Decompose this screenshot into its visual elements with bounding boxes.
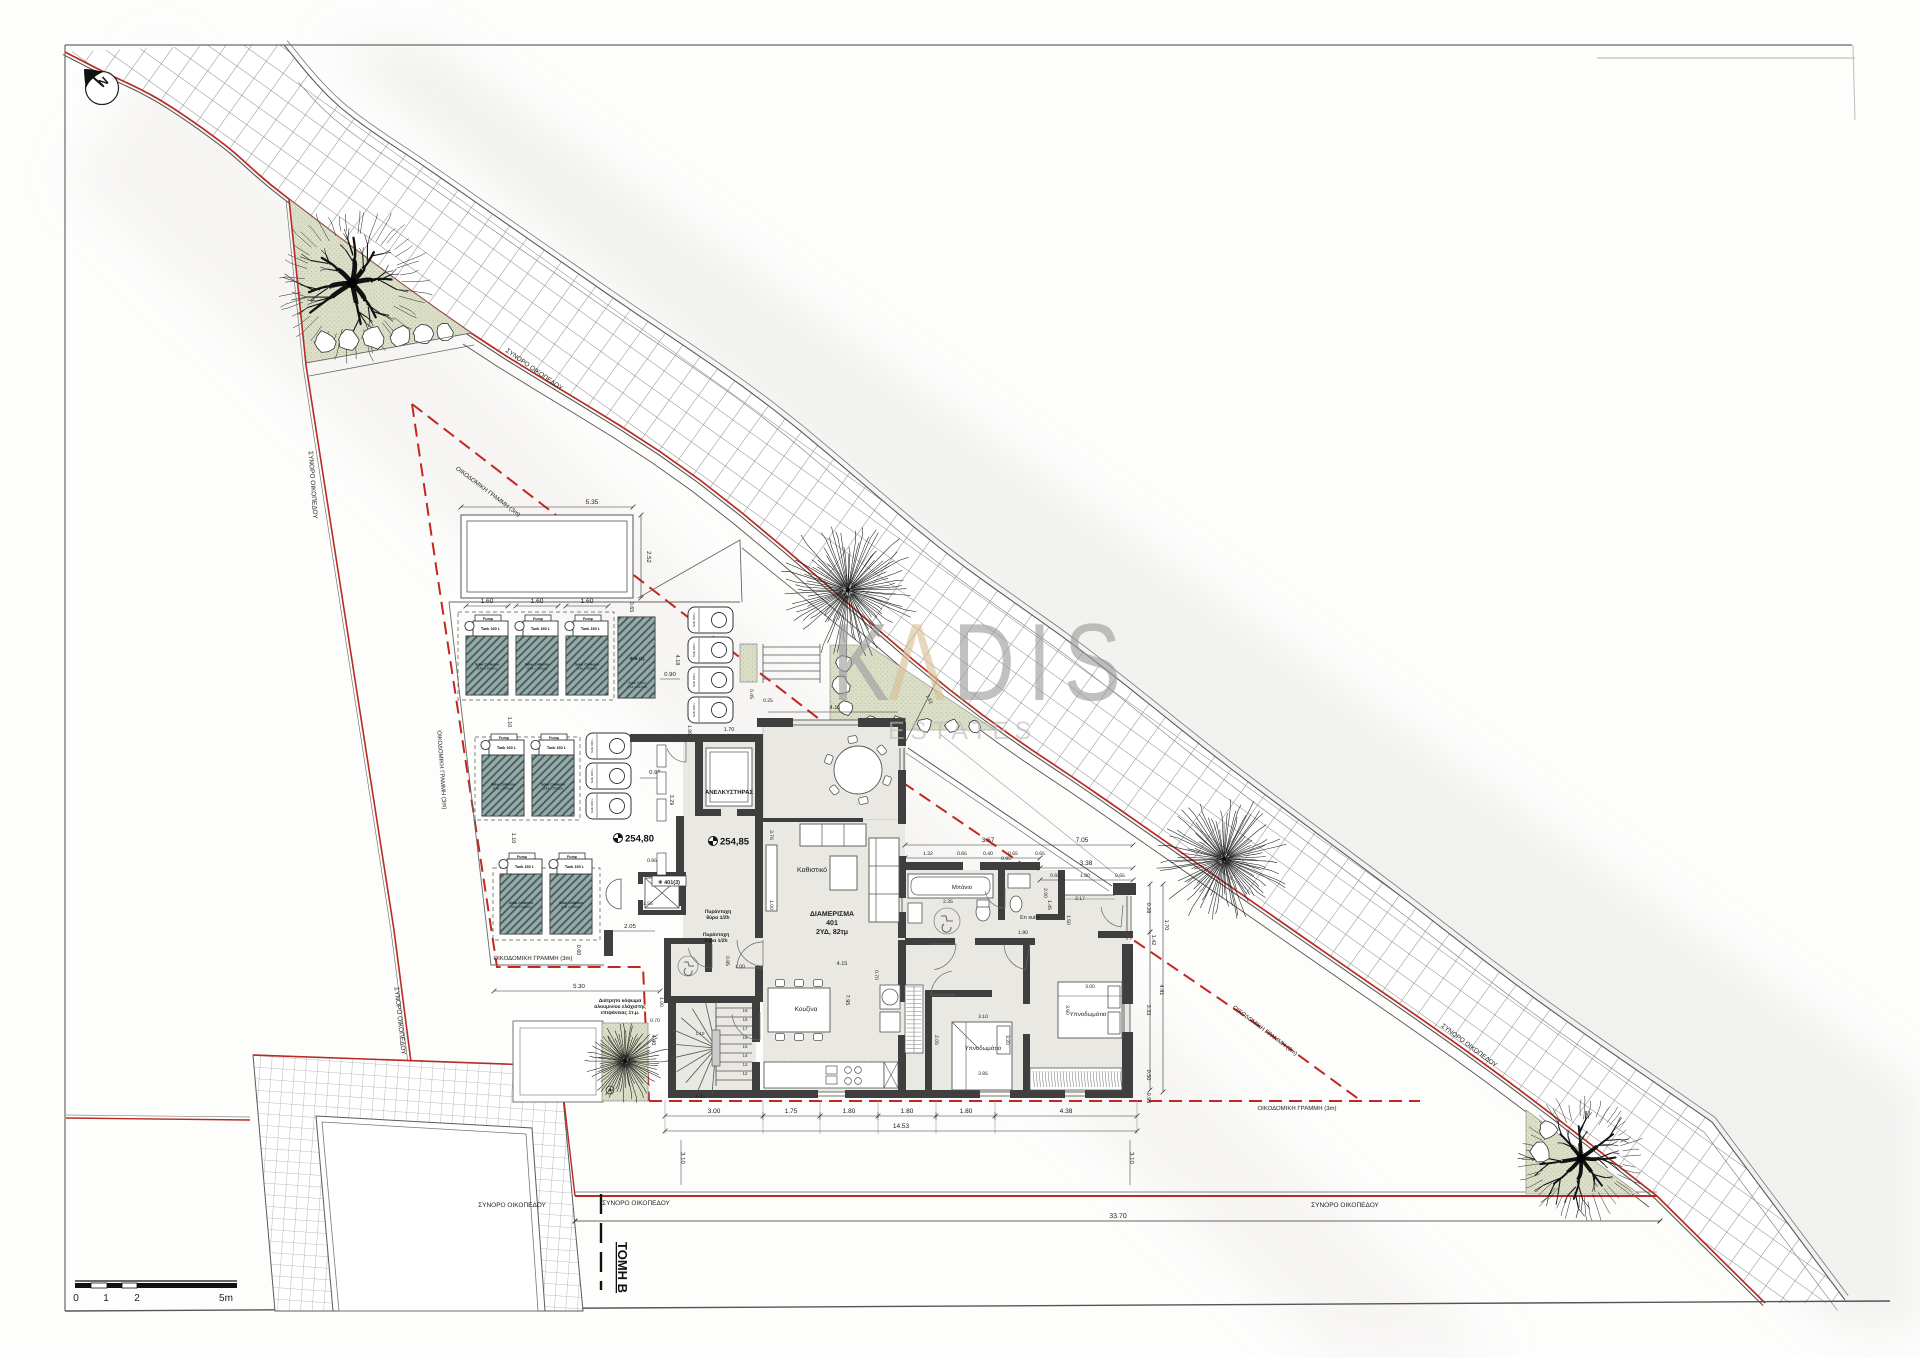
- svg-text:Pump: Pump: [517, 855, 528, 859]
- svg-text:19: 19: [742, 1008, 748, 1013]
- svg-text:1.55: 1.55: [643, 901, 653, 907]
- svg-text:1.10: 1.10: [506, 717, 512, 728]
- svg-text:Tank 160 L: Tank 160 L: [565, 865, 585, 869]
- svg-text:0: 0: [73, 1293, 79, 1304]
- svg-text:1.60: 1.60: [531, 598, 544, 605]
- svg-text:1.45: 1.45: [1046, 900, 1052, 910]
- svg-text:Tank 160 L: Tank 160 L: [497, 746, 517, 750]
- svg-text:Pump: Pump: [533, 617, 544, 621]
- svg-text:ΤΟΜΗ Β: ΤΟΜΗ Β: [615, 1242, 630, 1293]
- svg-text:1.70: 1.70: [1163, 920, 1169, 931]
- svg-text:0.65: 0.65: [628, 602, 634, 613]
- svg-text:5.30: 5.30: [573, 983, 585, 990]
- svg-text:1.00: 1.00: [658, 997, 664, 1007]
- svg-text:33.70: 33.70: [1109, 1213, 1127, 1220]
- svg-text:3.67: 3.67: [982, 837, 995, 844]
- svg-text:2.05: 2.05: [624, 923, 636, 930]
- svg-text:Tank 160 L: Tank 160 L: [581, 627, 601, 631]
- svg-text:Λ: Λ: [888, 601, 945, 724]
- svg-text:14: 14: [742, 1053, 748, 1058]
- svg-text:(149 x 200cm): (149 x 200cm): [527, 667, 547, 671]
- svg-text:Tank 100 L: Tank 100 L: [590, 738, 594, 753]
- svg-text:✳ 401(3): ✳ 401(3): [658, 879, 680, 886]
- svg-text:(149 x 200cm): (149 x 200cm): [561, 905, 581, 909]
- svg-text:Pump: Pump: [567, 855, 578, 859]
- svg-text:0.70: 0.70: [650, 1018, 660, 1024]
- svg-text:401: 401: [826, 920, 838, 927]
- svg-text:1.75: 1.75: [785, 1108, 798, 1115]
- svg-text:0.65: 0.65: [957, 851, 967, 857]
- svg-text:3.85: 3.85: [978, 1071, 988, 1077]
- svg-text:DIS: DIS: [953, 601, 1133, 724]
- svg-text:1.60: 1.60: [581, 598, 594, 605]
- svg-text:ΣΥΝΟΡΟ ΟΙΚΟΠΕΔΟΥ: ΣΥΝΟΡΟ ΟΙΚΟΠΕΔΟΥ: [1311, 1202, 1379, 1209]
- svg-text:17: 17: [742, 1026, 748, 1031]
- svg-text:2.17: 2.17: [1075, 896, 1085, 902]
- svg-text:3.20: 3.20: [1004, 1035, 1010, 1045]
- svg-text:Tank 100 L: Tank 100 L: [590, 768, 594, 783]
- svg-text:7.05: 7.05: [1076, 837, 1089, 844]
- svg-text:Μπάνιο: Μπάνιο: [952, 884, 973, 891]
- svg-text:Tank 100 L: Tank 100 L: [590, 798, 594, 813]
- svg-text:3.10: 3.10: [1128, 1152, 1135, 1164]
- svg-text:0.45: 0.45: [748, 689, 754, 699]
- svg-text:ΑΝΕΛΚΥΣΤΗΡΑΣ: ΑΝΕΛΚΥΣΤΗΡΑΣ: [705, 789, 753, 796]
- svg-text:3.60: 3.60: [1064, 1005, 1070, 1015]
- svg-text:Υπνοδωμάτιο: Υπνοδωμάτιο: [1070, 1011, 1107, 1018]
- svg-text:0.25: 0.25: [763, 698, 773, 704]
- svg-text:3.29: 3.29: [668, 795, 674, 806]
- svg-text:7.95: 7.95: [844, 995, 850, 1006]
- svg-text:12: 12: [742, 1071, 748, 1076]
- svg-text:2.05: 2.05: [933, 1035, 939, 1045]
- svg-text:(149 x 200cm): (149 x 200cm): [493, 787, 513, 791]
- svg-text:0.95: 0.95: [647, 858, 657, 864]
- svg-text:2ΥΔ, 82τμ: 2ΥΔ, 82τμ: [816, 929, 848, 936]
- svg-text:0.65: 0.65: [1035, 851, 1045, 857]
- svg-text:επιφάνειας 1τ.μ.: επιφάνειας 1τ.μ.: [601, 1010, 640, 1016]
- svg-text:1.10: 1.10: [510, 833, 516, 844]
- svg-text:0.93: 0.93: [1050, 873, 1060, 879]
- svg-text:(149 x 200cm): (149 x 200cm): [577, 667, 597, 671]
- svg-text:ESTATES: ESTATES: [888, 717, 1037, 745]
- svg-text:Καθιστικό: Καθιστικό: [797, 866, 827, 874]
- svg-text:0.70: 0.70: [873, 970, 879, 980]
- svg-text:(714 x 347cm): (714 x 347cm): [627, 685, 647, 689]
- svg-text:1.00: 1.00: [735, 964, 745, 970]
- svg-text:254,85: 254,85: [720, 837, 750, 848]
- svg-text:1: 1: [103, 1293, 109, 1304]
- svg-text:2: 2: [134, 1293, 140, 1304]
- svg-text:4.38: 4.38: [1060, 1108, 1073, 1115]
- svg-text:0.90: 0.90: [664, 671, 676, 678]
- svg-text:Pump: Pump: [483, 617, 494, 621]
- svg-text:Tank 160 L: Tank 160 L: [481, 627, 501, 631]
- svg-text:1.45: 1.45: [695, 1094, 705, 1100]
- svg-text:1.90: 1.90: [1018, 930, 1028, 936]
- svg-text:θύρα 1/2h: θύρα 1/2h: [706, 915, 729, 921]
- svg-text:0.65: 0.65: [1115, 873, 1125, 879]
- svg-text:1.80: 1.80: [960, 1108, 973, 1115]
- svg-text:(149 x 200cm): (149 x 200cm): [511, 905, 531, 909]
- svg-text:(149 x 200cm): (149 x 200cm): [477, 667, 497, 671]
- svg-text:1.80: 1.80: [901, 1108, 914, 1115]
- svg-text:1.80: 1.80: [843, 1108, 856, 1115]
- svg-text:4.91: 4.91: [1158, 985, 1164, 996]
- svg-text:Tank 160 L: Tank 160 L: [547, 746, 567, 750]
- svg-text:0.60: 0.60: [575, 945, 581, 956]
- svg-text:Tank 100 L: Tank 100 L: [692, 702, 696, 717]
- svg-text:5.35: 5.35: [586, 499, 599, 506]
- svg-text:0.28: 0.28: [1145, 903, 1151, 914]
- svg-text:5m: 5m: [219, 1293, 233, 1304]
- svg-text:2.35: 2.35: [943, 899, 953, 905]
- svg-text:0.65: 0.65: [1008, 851, 1018, 857]
- svg-text:2.00: 2.00: [1042, 888, 1048, 898]
- svg-text:1.95: 1.95: [686, 725, 692, 735]
- svg-text:Tank 100 L: Tank 100 L: [692, 642, 696, 657]
- svg-text:15: 15: [742, 1044, 748, 1049]
- svg-text:Υπνοδωμάτιο: Υπνοδωμάτιο: [965, 1045, 1002, 1052]
- svg-text:Κουζίνα: Κουζίνα: [795, 1006, 818, 1013]
- svg-text:Pump: Pump: [499, 736, 510, 740]
- svg-text:3.10: 3.10: [978, 1014, 988, 1020]
- svg-text:4.18: 4.18: [674, 655, 680, 666]
- svg-text:1.60: 1.60: [481, 598, 494, 605]
- svg-text:3.00: 3.00: [708, 1108, 721, 1115]
- svg-text:ΟΙΚΟΔΟΜΙΚΗ ΓΡΑΜΜΗ (3m): ΟΙΚΟΔΟΜΙΚΗ ΓΡΑΜΜΗ (3m): [493, 955, 572, 962]
- svg-text:14.53: 14.53: [893, 1123, 910, 1130]
- svg-text:1.80: 1.80: [1080, 873, 1090, 879]
- svg-text:ΣΥΝΟΡΟ ΟΙΚΟΠΕΔΟΥ: ΣΥΝΟΡΟ ΟΙΚΟΠΕΔΟΥ: [602, 1200, 670, 1207]
- svg-text:0.40: 0.40: [983, 851, 993, 857]
- svg-text:4.40: 4.40: [650, 1035, 656, 1046]
- svg-text:0.50: 0.50: [1145, 1070, 1151, 1081]
- svg-text:254,80: 254,80: [625, 834, 654, 845]
- svg-text:Pump: Pump: [549, 736, 560, 740]
- svg-text:1.32: 1.32: [923, 851, 933, 857]
- svg-text:18: 18: [742, 1017, 748, 1022]
- svg-text:ΟΙΚΟΔΟΜΙΚΗ ΓΡΑΜΜΗ (3m): ΟΙΚΟΔΟΜΙΚΗ ΓΡΑΜΜΗ (3m): [1257, 1105, 1336, 1112]
- svg-text:Φ/Β (1): Φ/Β (1): [630, 656, 645, 661]
- svg-text:En suite: En suite: [1020, 915, 1040, 921]
- svg-text:ΔΙΑΜΕΡΙΣΜΑ: ΔΙΑΜΕΡΙΣΜΑ: [810, 911, 854, 918]
- svg-text:θύρα 1/2h: θύρα 1/2h: [704, 938, 727, 944]
- svg-text:0.85: 0.85: [724, 956, 730, 966]
- svg-text:3.38: 3.38: [1080, 860, 1093, 867]
- svg-text:3.10: 3.10: [679, 1152, 686, 1164]
- svg-text:1.42: 1.42: [1150, 935, 1156, 946]
- svg-text:3.00: 3.00: [1085, 984, 1095, 990]
- svg-text:4.15: 4.15: [837, 961, 848, 967]
- svg-text:3.33: 3.33: [1145, 1005, 1151, 1016]
- svg-text:1.50: 1.50: [1065, 915, 1071, 925]
- svg-text:3.76: 3.76: [768, 830, 774, 840]
- svg-text:1.00: 1.00: [768, 900, 774, 910]
- svg-text:2.52: 2.52: [645, 551, 652, 563]
- svg-text:Tank 100 L: Tank 100 L: [692, 612, 696, 627]
- svg-text:0.98: 0.98: [1145, 1093, 1151, 1104]
- svg-text:13: 13: [742, 1062, 748, 1067]
- svg-text:Tank 160 L: Tank 160 L: [515, 865, 535, 869]
- svg-text:Tank 100 L: Tank 100 L: [692, 672, 696, 687]
- svg-text:1.10: 1.10: [696, 1031, 705, 1036]
- svg-text:(149 x 200cm): (149 x 200cm): [543, 787, 563, 791]
- svg-text:Pump: Pump: [583, 617, 594, 621]
- svg-text:ΣΥΝΟΡΟ ΟΙΚΟΠΕΔΟΥ: ΣΥΝΟΡΟ ΟΙΚΟΠΕΔΟΥ: [478, 1202, 546, 1209]
- svg-text:1.70: 1.70: [724, 727, 735, 733]
- svg-text:Tank 160 L: Tank 160 L: [531, 627, 551, 631]
